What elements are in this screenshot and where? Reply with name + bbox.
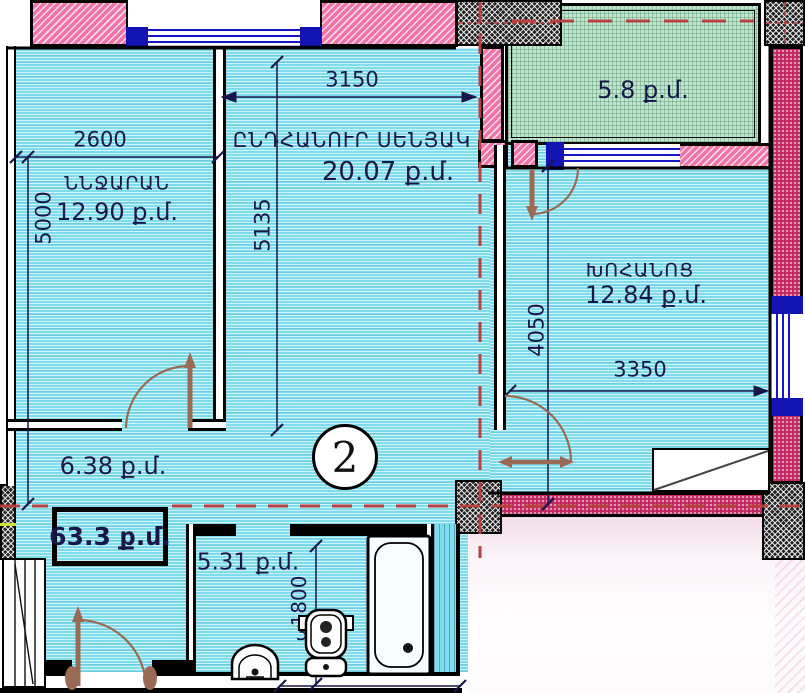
bathroom-area: 5.31 ք.մ. bbox=[197, 552, 299, 575]
bottom-edge bbox=[0, 688, 462, 693]
column-top-right bbox=[764, 0, 805, 46]
bedroom-window-cap-right bbox=[300, 27, 322, 48]
living-name: ԸՆԴՀԱՆՈՒՐ ՍԵՆՅԱԿ bbox=[233, 130, 472, 150]
wall-kitchen-bottom bbox=[498, 492, 766, 517]
wall-right-upper bbox=[770, 46, 803, 299]
dim-bedroom-width: 2600 bbox=[73, 130, 126, 151]
balcony-area: 5.8 ք.մ. bbox=[597, 78, 689, 102]
kitchen-counter bbox=[652, 448, 770, 492]
kitchen-window-glass bbox=[776, 314, 792, 398]
wall-bath-right bbox=[424, 524, 434, 684]
column-right-mid bbox=[762, 482, 805, 560]
wall-right-lower bbox=[770, 413, 803, 484]
living-area: 20.07 ք.մ. bbox=[322, 159, 454, 185]
dim-bath-width: 1800 bbox=[289, 576, 309, 627]
column-far-left-mark bbox=[0, 523, 16, 526]
wall-shaft-right bbox=[456, 524, 460, 684]
wall-stub-b bbox=[511, 140, 538, 168]
dim-kitchen-width: 3350 bbox=[613, 360, 666, 381]
column-far-left bbox=[0, 484, 16, 560]
wall-hall-bottom-b bbox=[152, 660, 196, 676]
wall-top-mid bbox=[318, 0, 458, 47]
bedroom-window-glass bbox=[146, 29, 302, 45]
kitchen-window-cap-bottom bbox=[770, 398, 803, 416]
wall-bedroom-bottom-a bbox=[8, 419, 122, 431]
wall-bath-top-b bbox=[290, 524, 434, 536]
kitchen-name: ԽՈՀԱՆՈՑ bbox=[586, 262, 694, 281]
adjacent-unit-faded bbox=[468, 516, 805, 693]
dim-living-width: 3150 bbox=[325, 70, 378, 91]
bedroom-name: ՆՆՋԱՐԱՆ bbox=[64, 175, 169, 194]
dim-living-height: 5135 bbox=[253, 198, 274, 251]
bedroom-area: 12.90 ք.մ. bbox=[56, 200, 178, 224]
dim-bath-depth: 3900 bbox=[296, 623, 347, 643]
balcony-door-cap bbox=[546, 142, 564, 170]
unit-number-badge: 2 bbox=[312, 424, 378, 490]
kitchen-area: 12.84 ք.մ. bbox=[585, 283, 707, 307]
unit-number: 2 bbox=[332, 433, 359, 482]
hall-area: 6.38 ք.մ. bbox=[60, 454, 167, 478]
kitchen-window-cap-top bbox=[770, 296, 803, 314]
wardrobe bbox=[2, 558, 46, 688]
wall-top-left bbox=[30, 0, 130, 47]
duct-shaft bbox=[434, 524, 456, 684]
floor-plan: 63.3 ք.մ. 2 ՆՆՋԱՐԱՆ 12.90 ք.մ. ԸՆԴՀԱՆՈՒՐ… bbox=[0, 0, 805, 693]
outside-strip bbox=[0, 676, 466, 688]
wall-living-kitchen-partition bbox=[494, 145, 506, 430]
dim-bedroom-height: 5000 bbox=[34, 191, 55, 244]
column-kitchen-door bbox=[455, 480, 502, 534]
total-area-label: 63.3 ք.մ. bbox=[49, 524, 171, 549]
wall-balcony-side bbox=[480, 46, 504, 142]
wall-kitchen-top bbox=[676, 143, 772, 169]
adjacent-unit-hatch bbox=[775, 556, 805, 693]
bedroom-window-cap-left bbox=[126, 27, 148, 48]
dim-kitchen-height: 4050 bbox=[527, 303, 548, 356]
wall-bedroom-bottom-b bbox=[188, 419, 226, 431]
balcony-door-glass bbox=[562, 148, 680, 164]
column-top-mid bbox=[456, 0, 562, 46]
wall-bedroom-partition bbox=[213, 48, 226, 421]
total-area-box: 63.3 ք.մ. bbox=[52, 507, 168, 566]
